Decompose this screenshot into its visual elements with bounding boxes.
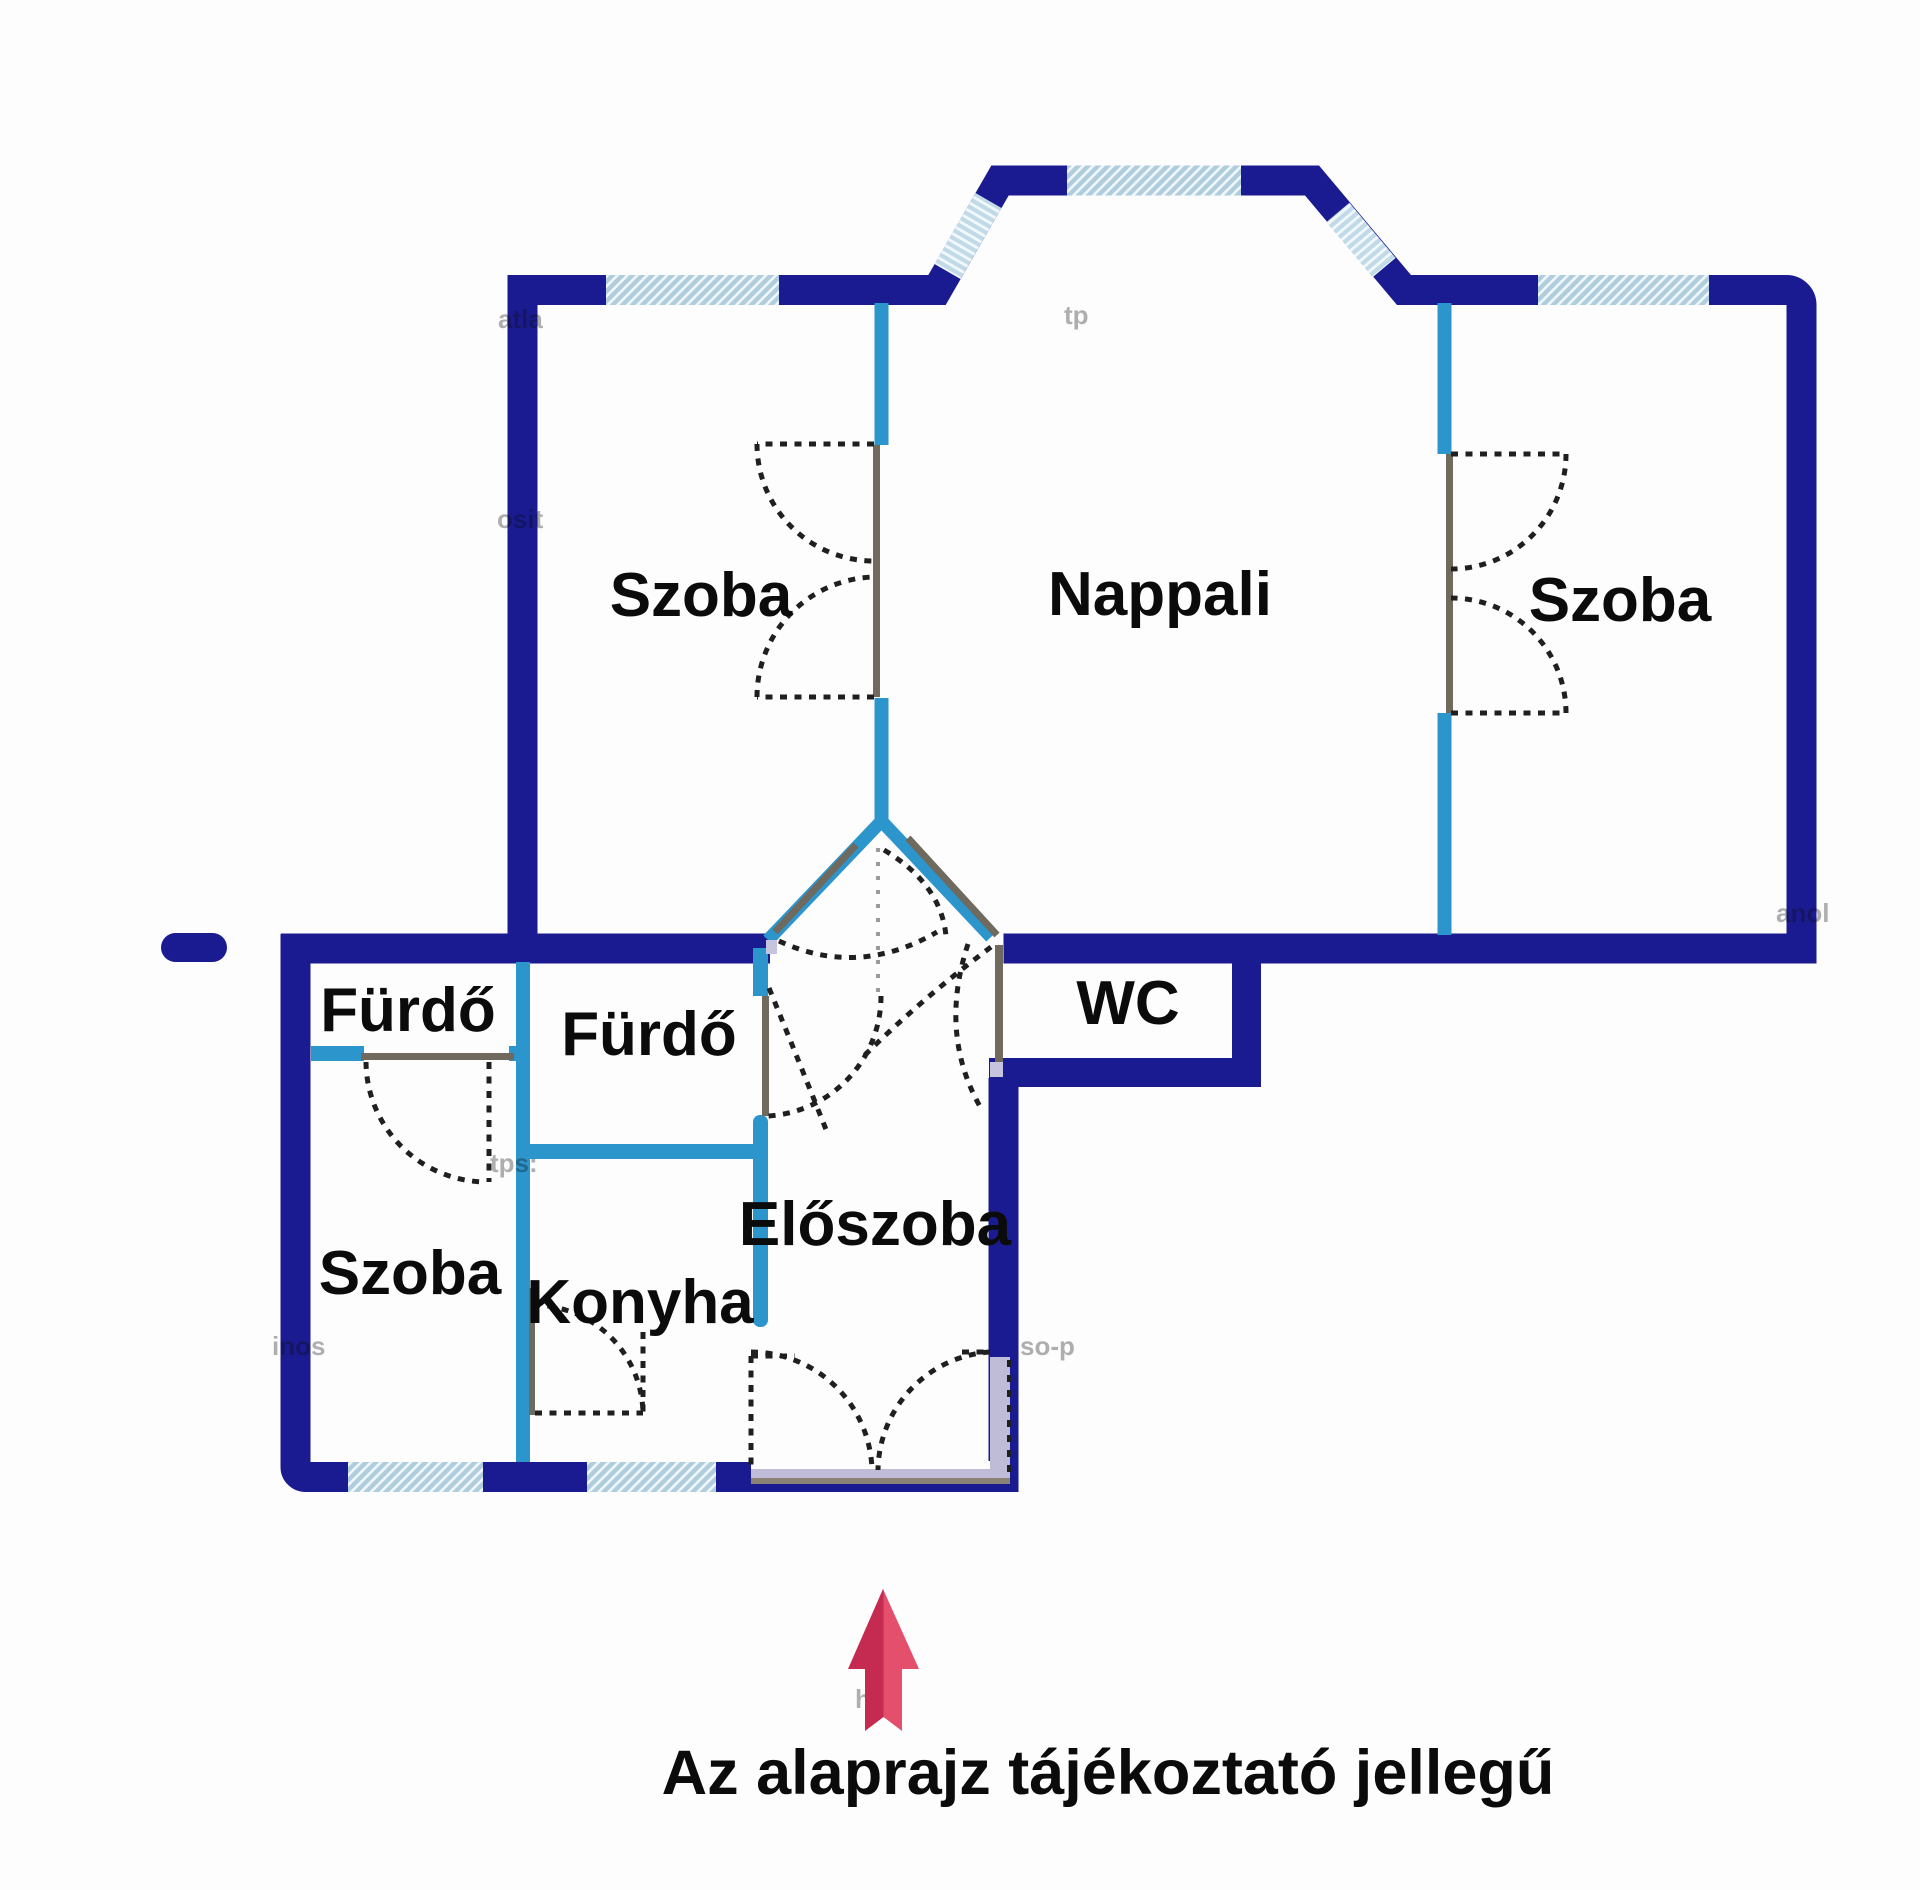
svg-text:WC: WC bbox=[1076, 969, 1179, 1038]
svg-text:atla: atla bbox=[498, 304, 543, 334]
svg-text:Az alaprajz tájékoztató jelleg: Az alaprajz tájékoztató jellegű bbox=[662, 1738, 1555, 1808]
svg-text:Fürdő: Fürdő bbox=[320, 976, 496, 1045]
svg-text:Szoba: Szoba bbox=[610, 561, 793, 630]
svg-text:Szoba: Szoba bbox=[1529, 566, 1712, 635]
svg-text:anol: anol bbox=[1776, 898, 1829, 928]
svg-text:Fürdő: Fürdő bbox=[561, 1000, 737, 1069]
svg-text:Konyha: Konyha bbox=[526, 1268, 754, 1337]
svg-text:osit: osit bbox=[497, 504, 544, 534]
svg-text:Szoba: Szoba bbox=[319, 1239, 502, 1308]
svg-text:Előszoba: Előszoba bbox=[739, 1190, 1012, 1259]
svg-text:inos: inos bbox=[272, 1331, 325, 1361]
svg-text:tps:: tps: bbox=[490, 1148, 538, 1178]
svg-text:tp: tp bbox=[1064, 300, 1089, 330]
svg-text:Nappali: Nappali bbox=[1048, 560, 1272, 629]
svg-text:so-p: so-p bbox=[1020, 1331, 1075, 1361]
